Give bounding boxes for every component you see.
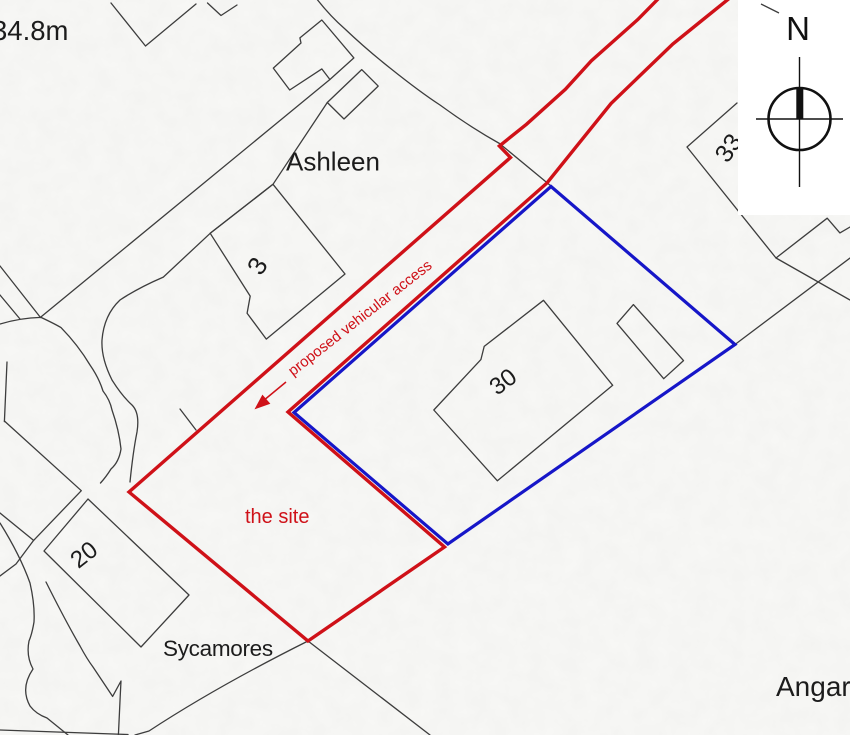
svg-text:Ashleen: Ashleen — [286, 147, 380, 177]
svg-text:the site: the site — [245, 506, 309, 528]
svg-text:Sycamores: Sycamores — [163, 636, 273, 661]
svg-text:N: N — [786, 10, 810, 47]
svg-text:Angarrack: Angarrack — [776, 671, 850, 702]
svg-text:34.8m: 34.8m — [0, 15, 68, 46]
